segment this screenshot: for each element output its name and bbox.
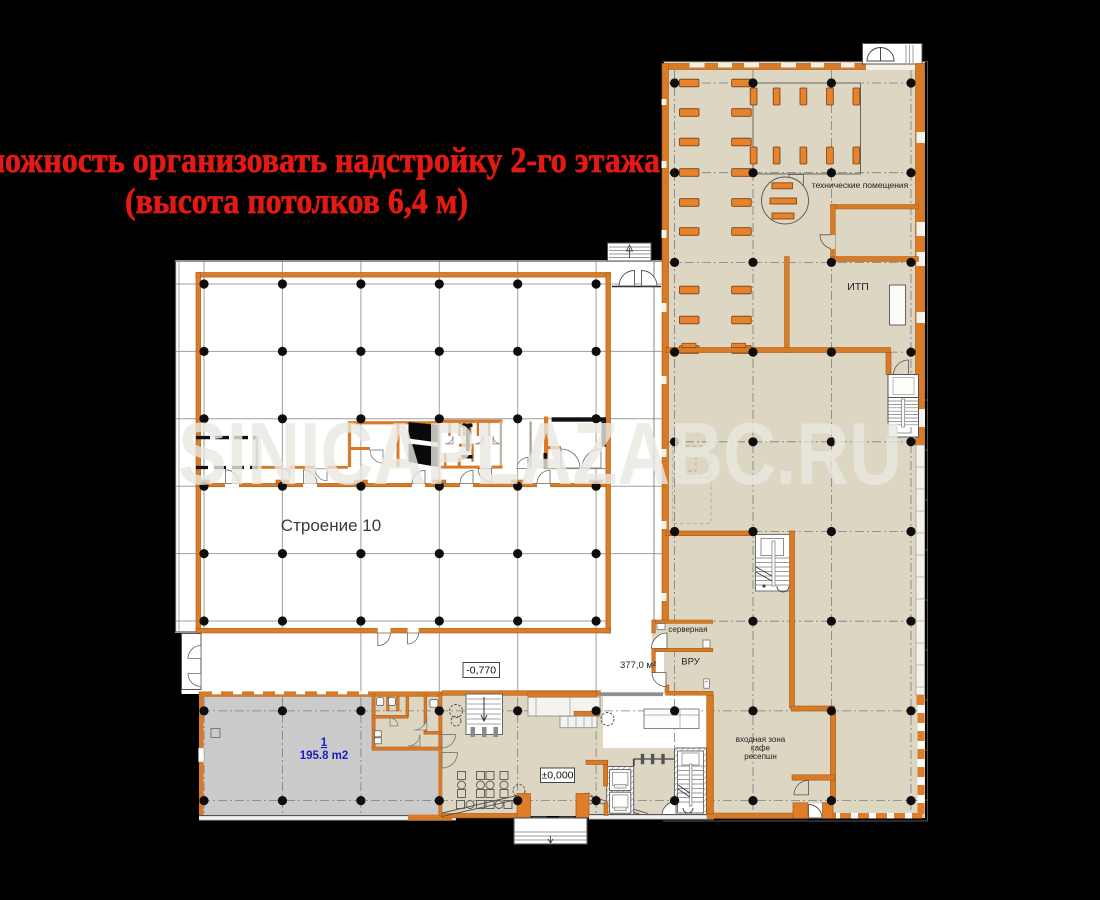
svg-text:377,0 м²: 377,0 м²	[620, 660, 656, 671]
svg-text:ИТП: ИТП	[847, 281, 869, 293]
svg-text:технические помещения: технические помещения	[812, 180, 909, 190]
svg-text:-0,770: -0,770	[466, 665, 496, 677]
svg-text:возможность организовать надст: возможность организовать надстройку 2-го…	[0, 140, 660, 180]
svg-text:серверная: серверная	[668, 625, 707, 634]
svg-text:1: 1	[321, 737, 328, 749]
svg-text:ресепшн: ресепшн	[744, 752, 777, 761]
svg-text:±0,000: ±0,000	[541, 770, 573, 782]
svg-text:SINICAPLAZABC.RU: SINICAPLAZABC.RU	[178, 404, 902, 503]
svg-text:(высота потолков 6,4 м): (высота потолков 6,4 м)	[125, 181, 468, 221]
svg-text:Строение 10: Строение 10	[281, 516, 381, 535]
svg-text:195.8 m2: 195.8 m2	[300, 750, 349, 762]
svg-text:ВРУ: ВРУ	[681, 657, 700, 668]
